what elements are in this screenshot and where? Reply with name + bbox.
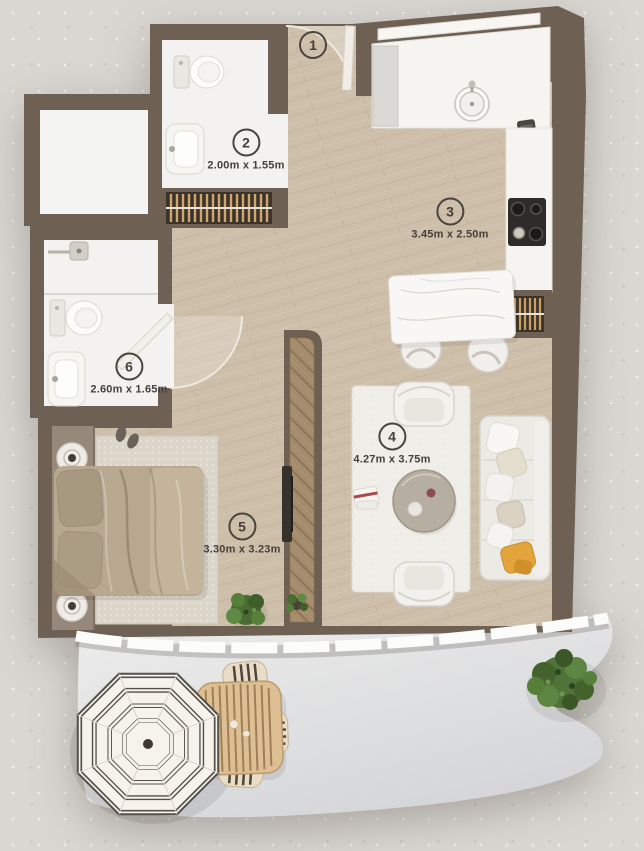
bathroom2-floor-lower (268, 114, 288, 188)
wardrobe-tv-wall (282, 330, 322, 628)
bed-pillow (56, 469, 104, 528)
shaft-room-floor (40, 110, 148, 214)
armchair (394, 562, 454, 606)
floor-plan-svg (0, 0, 644, 851)
bedroom-plant (226, 593, 268, 629)
entry-kitchen-wall (356, 24, 374, 96)
bathroom6-toilet (50, 300, 102, 336)
bathroom6-sink (48, 352, 85, 406)
stove (508, 198, 546, 246)
dining-table (388, 270, 519, 350)
tv (282, 466, 292, 542)
doormat (166, 192, 272, 224)
bathroom2-toilet (174, 56, 224, 88)
bed (54, 466, 208, 600)
armchair (394, 382, 454, 426)
patio-umbrella (78, 674, 218, 814)
floor-plan-screenshot: 1 2 2.00m x 1.55m 3 3.45m x 2.50m 4 4.27… (0, 0, 644, 851)
living-room (352, 382, 550, 606)
wardrobe-wood-panel (290, 338, 314, 622)
sofa (480, 416, 550, 580)
bathroom2-sink (166, 124, 204, 174)
kitchen-fridge (373, 46, 398, 126)
